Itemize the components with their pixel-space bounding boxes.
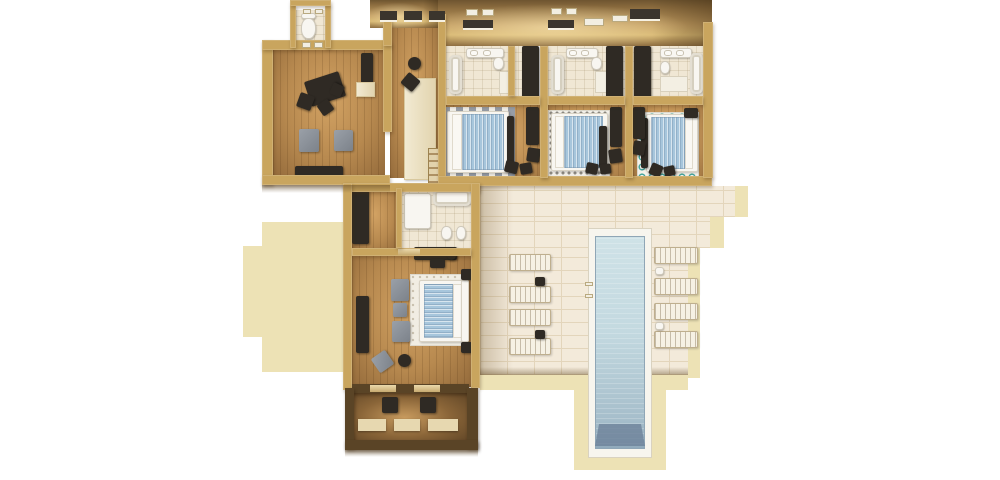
hall-stool [408,57,421,70]
suite2-wardrobe [606,46,623,98]
wing-window-1 [463,20,493,28]
suite1-bed-pillows [452,114,462,170]
master-pouf [398,354,411,367]
wall-loggia-east [467,388,478,448]
office-vent-1 [302,42,311,48]
suite2-chair [608,148,623,164]
wall-suite1-wc [508,46,515,96]
suite2-ottoman-2 [600,163,612,174]
master-armchair-2 [392,321,410,342]
pool-border-bottom [574,458,666,470]
office-side-table [356,82,375,97]
suite1-toilet [493,57,504,70]
suite1-ottoman-2 [519,162,533,175]
wall-master-east [471,183,480,388]
master-vanity [404,193,431,229]
wall-east [703,22,713,178]
wall-alcove-right [325,5,331,48]
office-vent-2 [314,42,323,48]
master-closet-wardrobe [352,189,369,244]
shadow-loggia-south [345,450,478,457]
suite2-sink-2 [581,50,589,56]
terrace-shadow-south [480,367,688,375]
suite3-bed-duvet [651,117,685,169]
pool-deep-slope [595,424,645,446]
loggia-door-1 [370,385,396,392]
wing-vent-2a [551,8,562,15]
sun-lounger-right-4 [654,331,698,348]
pool-border-left [574,378,588,470]
sun-lounger-right-1 [654,247,698,264]
suite3-shower [660,76,688,92]
master-armchair-1 [391,279,409,301]
wall-master-mid-door [398,249,420,255]
wall-suite1-bath [446,96,540,105]
sun-lounger-left-4 [509,338,551,355]
wing-vent-3 [612,15,628,22]
side-table-right-1 [655,267,664,275]
wall-loggia-south [345,440,478,450]
office-cabinet [361,53,373,83]
wall-master-bath-div [396,188,402,248]
flat-roof-left-main [262,222,348,372]
wall-suite2-bath [548,96,625,105]
suite3-chair [632,140,646,156]
office-armchair-1 [299,129,319,152]
pool-border-right [652,378,666,470]
wing-vent-1a [466,9,478,16]
alcove-vent-2 [315,9,323,14]
alcove-toilet [301,18,316,39]
wing-shelf [584,18,604,26]
suite3-wardrobe [634,46,651,98]
loggia-mat-1 [358,419,386,431]
master-bidet [456,226,466,240]
suite3-tv-cabinet [633,107,645,139]
suite3-bathtub [690,53,703,94]
wall-master-west [343,183,352,390]
loggia-mat-2 [394,419,420,431]
suite3-toilet [660,61,670,74]
wing-vent-1b [482,9,494,16]
suite2-bed-pillows [555,116,564,168]
wall-hall-right [438,14,446,178]
sun-lounger-left-2 [509,286,551,303]
floor-plan-canvas [0,0,1000,480]
suite2-sink-1 [569,50,577,56]
suite1-bathtub [449,55,462,94]
side-table-left-2 [535,330,545,339]
wall-suite1-2 [540,46,548,178]
pool-ladder-step-1 [585,282,593,286]
suite2-ottoman-1 [585,162,599,175]
master-ottoman [393,303,407,317]
side-table-right-2 [655,322,664,330]
master-toilet [441,226,452,240]
suite1-chair [526,147,541,163]
sun-lounger-right-2 [654,278,698,295]
loggia-door-2 [414,385,440,392]
hall-window-1 [380,11,397,20]
office-armchair-2 [334,130,353,151]
master-tv-console [430,259,445,268]
wing-window-3 [630,9,660,19]
flat-roof-left-ext [243,246,263,337]
suite1-wardrobe [522,46,539,98]
sun-lounger-right-3 [654,303,698,320]
wall-office-right [383,44,392,132]
wall-alcove-top [290,0,331,6]
suite2-toilet [591,57,602,70]
wall-suite3-bath [633,96,703,105]
master-bed-duvet [424,284,453,338]
suite2-bathtub [551,55,564,94]
shadow-office-south [262,185,390,193]
terrace-border-right-1 [735,186,748,217]
master-dresser [356,296,369,353]
suite3-bed-pillows [685,117,693,169]
suite3-sink-2 [676,50,684,56]
suite1-bed-duvet [462,114,504,170]
sun-lounger-left-3 [509,309,551,326]
pool-water [595,236,645,449]
wall-loggia-west [345,388,354,448]
pool-ladder-step-2 [585,294,593,298]
loggia-chair-1 [382,397,398,413]
hall-window-3 [429,11,445,20]
master-headboard [461,280,469,342]
suite2-tv-cabinet [610,107,622,147]
suite1-tv-cabinet [526,107,539,145]
wall-alcove-left [290,5,296,48]
suite1-sink-1 [470,50,478,56]
wall-office-left [262,40,273,185]
suite3-nightstand [684,108,698,118]
terrace-border-right-2 [710,217,724,248]
loggia-chair-2 [420,397,436,413]
side-table-left-1 [535,277,545,286]
hall-window-2 [404,11,422,20]
suite2-foot-bench [599,126,607,168]
sun-lounger-left-1 [509,254,551,271]
suite1-sink-2 [483,50,491,56]
wall-suite2-3 [625,46,633,178]
suite2-bed-duvet [564,116,603,168]
loggia-mat-3 [428,419,458,431]
wing-vent-2b [566,8,577,15]
suite3-sink-1 [664,50,672,56]
wing-window-2 [548,20,574,28]
loggia-floor [352,390,469,440]
alcove-vent-1 [303,9,311,14]
